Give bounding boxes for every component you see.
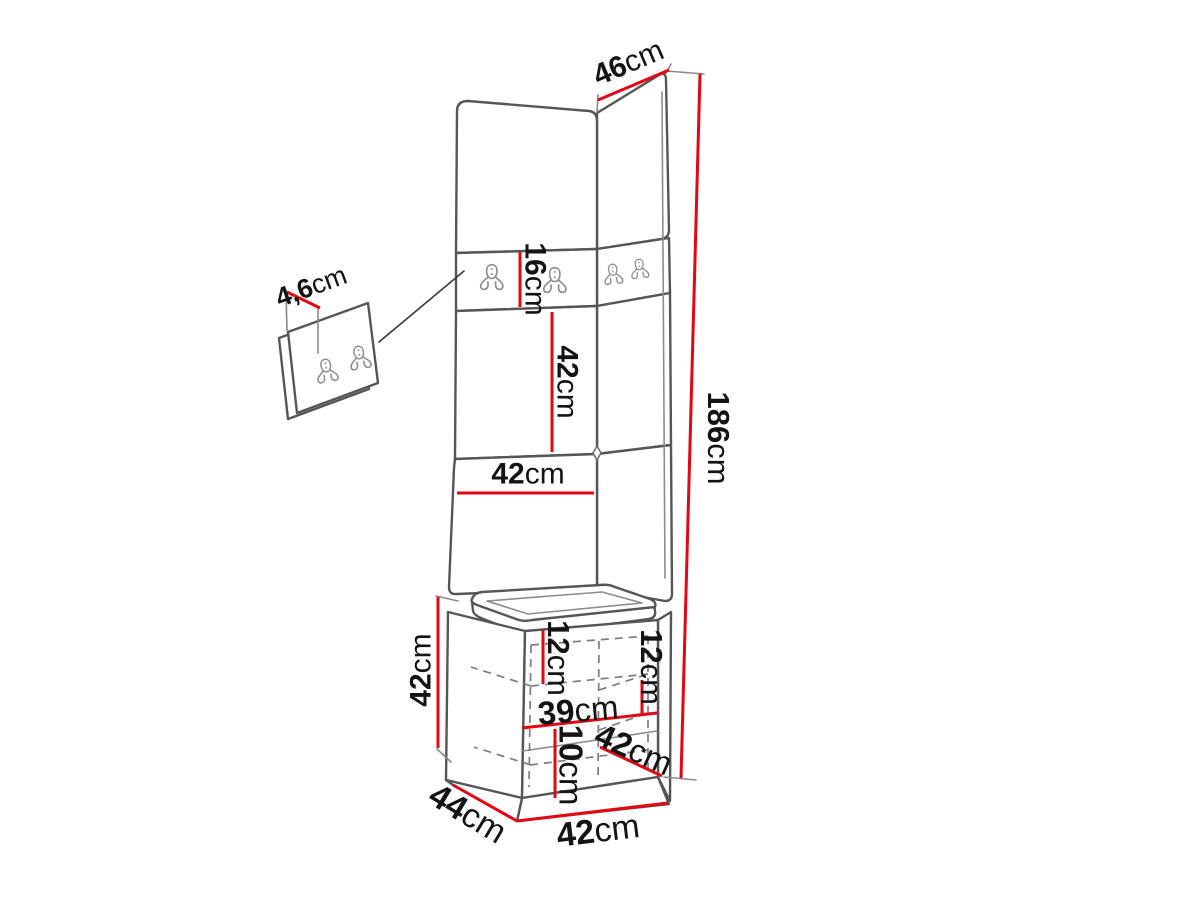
hook-panel-detail bbox=[279, 293, 378, 419]
front-panel-top-section bbox=[456, 101, 597, 253]
diagram-canvas: 46cm 4,6cm 16cm 42cm 42cm 186cm 42cm 12c… bbox=[0, 0, 1200, 899]
cabinet-left-side bbox=[446, 612, 525, 798]
dimension-label-front-panel-width: 42cm bbox=[491, 458, 564, 491]
side-panel-middle-section bbox=[597, 293, 671, 454]
tall-corner-panel bbox=[449, 74, 672, 601]
dimension-label-shelf-gap-left: 12cm bbox=[541, 620, 576, 696]
detail-callout-line bbox=[379, 271, 464, 342]
dimension-line-total-height bbox=[681, 74, 700, 778]
dimension-label-total-height: 186cm bbox=[701, 391, 736, 484]
dimension-label-panel-section-height: 42cm bbox=[551, 345, 584, 418]
side-panel-top-section bbox=[597, 74, 669, 249]
dimension-label-bottom-gap-height: 10cm bbox=[552, 725, 589, 806]
dimension-label-hook-strip-height: 16cm bbox=[519, 242, 552, 315]
extension-line bbox=[597, 95, 598, 112]
dimension-label-shelf-gap-right: 12cm bbox=[634, 629, 669, 705]
dimension-label-cabinet-height: 42cm bbox=[405, 633, 438, 706]
extension-line bbox=[667, 71, 704, 74]
side-panel-bottom-section bbox=[597, 445, 672, 601]
furniture-dimension-diagram: 46cm 4,6cm 16cm 42cm 42cm 186cm 42cm 12c… bbox=[0, 0, 1200, 899]
